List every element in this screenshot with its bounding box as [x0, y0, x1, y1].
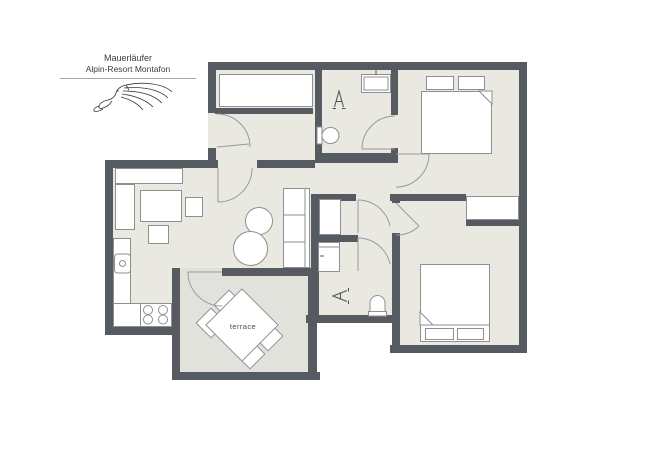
bedroom1-bed [421, 91, 492, 154]
horse-logo-icon [60, 81, 196, 113]
wall-terrace-south [172, 372, 320, 380]
wall-bedroom2-south [390, 345, 527, 353]
wall-entrance-south [257, 160, 315, 168]
wall-kitchen-south [105, 327, 180, 335]
wall-entrance-west-upper [208, 62, 216, 113]
wall-living-west [105, 160, 113, 335]
entrance-closet [219, 74, 313, 107]
wall-top [208, 62, 527, 70]
wall-living-north [105, 160, 218, 168]
washing-machine [318, 242, 340, 272]
wall-bedroom2-north [390, 194, 466, 201]
wall-bathroom1-east [391, 70, 398, 115]
stove [140, 303, 172, 327]
bedroom1-pillow-right [458, 76, 485, 90]
dining-chair-east [185, 197, 203, 217]
bathroom1-sink [361, 74, 391, 93]
wall-bathroom1-west [315, 70, 322, 163]
wall-terrace-north [222, 268, 318, 276]
floor-plan-canvas: Mauerläufer Alpin-Resort Montafon [0, 0, 650, 450]
dining-chair-south [148, 225, 169, 244]
brand-subtitle: Alpin-Resort Montafon [58, 64, 198, 74]
wall-right [519, 62, 527, 353]
brand-block: Mauerläufer Alpin-Resort Montafon [58, 53, 198, 118]
bedroom1-pillow-left [426, 76, 454, 90]
terrace-label: terrace [214, 322, 272, 331]
dining-bench-top [115, 168, 183, 184]
bedroom1-wardrobe [466, 196, 519, 220]
dining-bench-left [115, 184, 135, 230]
bedroom2-pillow-right [457, 328, 484, 340]
wall-bedroom2-west [392, 233, 400, 353]
brand-divider [60, 78, 196, 79]
coffee-table-large [233, 231, 268, 266]
dining-table [140, 190, 182, 222]
wall-closet-front [215, 108, 313, 114]
brand-title: Mauerläufer [58, 53, 198, 64]
wall-terrace-east [308, 268, 317, 380]
wall-niche-south [466, 219, 527, 226]
wall-bathroom1-east-post [391, 148, 398, 163]
wall-terrace-west [172, 268, 180, 380]
sofa [283, 188, 310, 268]
bedroom2-pillow-left [425, 328, 454, 340]
storage-cabinet [319, 199, 341, 235]
wall-bathroom2-south [306, 315, 398, 323]
wall-bathroom1-south [315, 153, 398, 163]
